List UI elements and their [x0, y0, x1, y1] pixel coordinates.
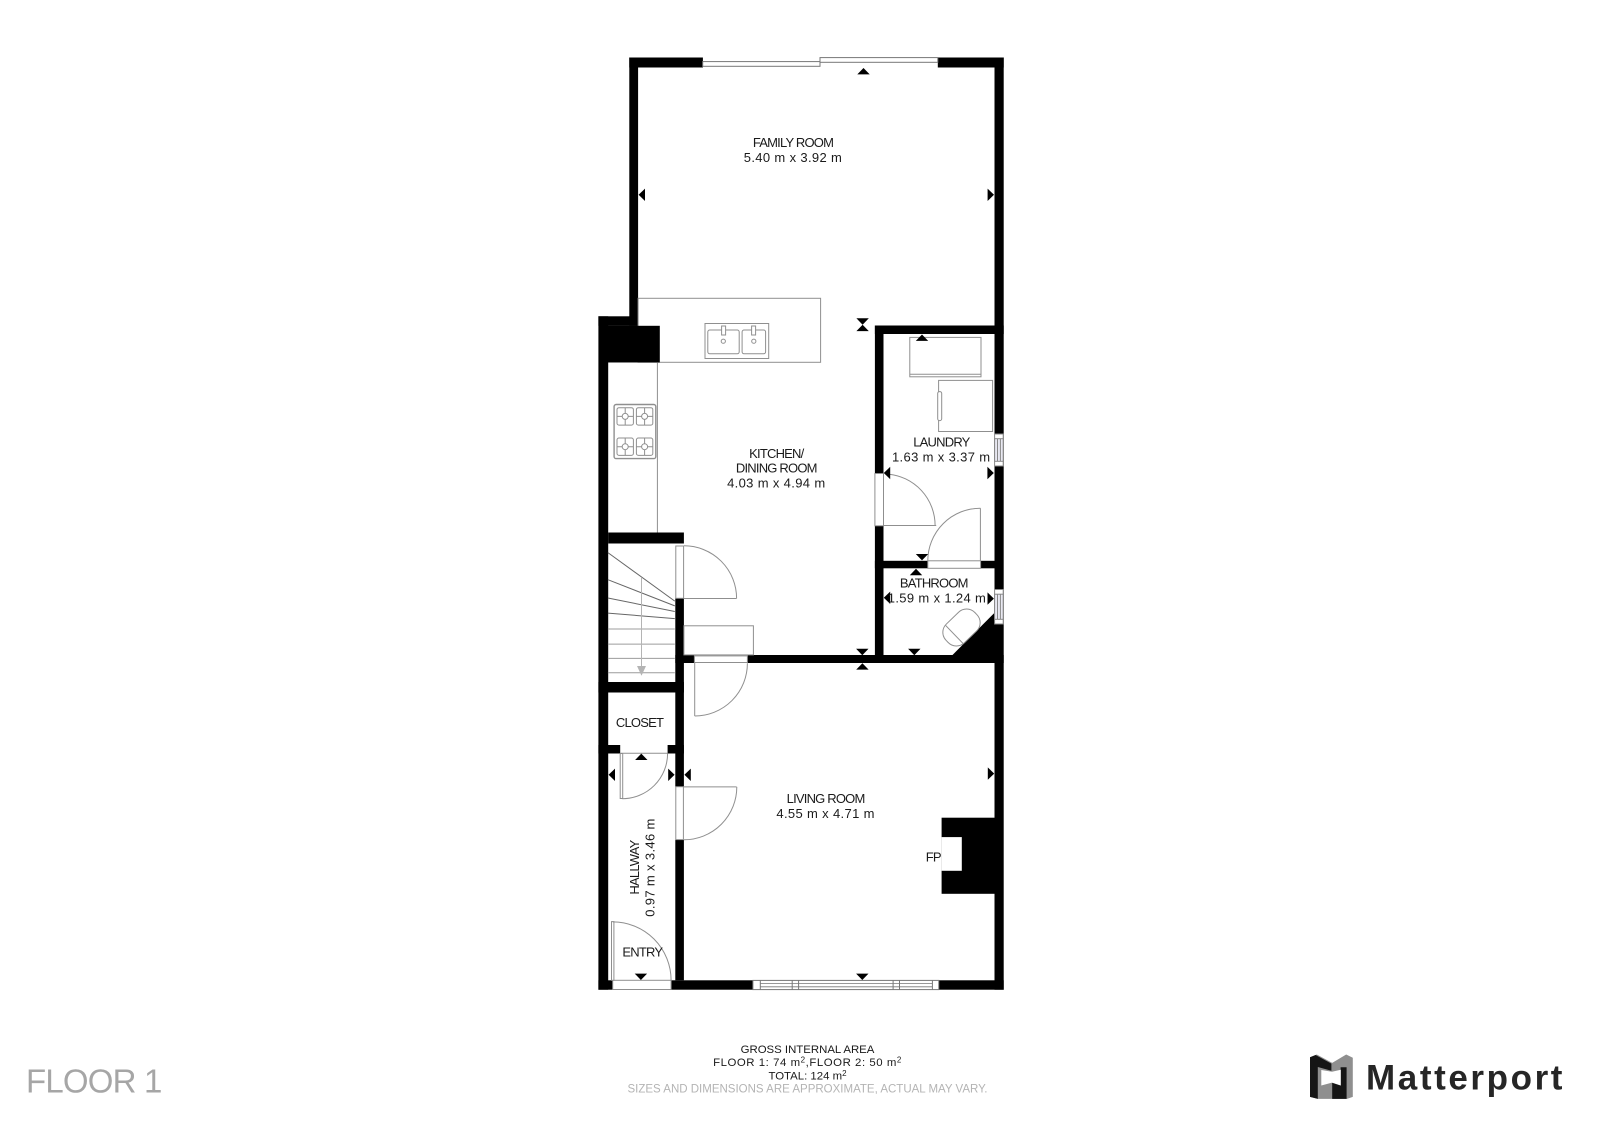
svg-text:KITCHEN/: KITCHEN/ — [749, 446, 804, 461]
svg-text:DINING ROOM: DINING ROOM — [736, 461, 817, 476]
svg-text:HALLWAY: HALLWAY — [627, 839, 642, 894]
svg-text:Matterport: Matterport — [1366, 1059, 1565, 1098]
svg-text:4.55 m x 4.71 m: 4.55 m x 4.71 m — [776, 806, 874, 821]
svg-text:LIVING ROOM: LIVING ROOM — [787, 791, 865, 806]
svg-text:0.97 m x 3.46 m: 0.97 m x 3.46 m — [643, 818, 658, 916]
svg-text:FLOOR 1: 74 m2,FLOOR 2: 50 m2: FLOOR 1: 74 m2,FLOOR 2: 50 m2 — [713, 1056, 902, 1070]
svg-text:FAMILY ROOM: FAMILY ROOM — [753, 135, 833, 150]
svg-text:LAUNDRY: LAUNDRY — [913, 435, 970, 450]
svg-text:CLOSET: CLOSET — [616, 715, 664, 730]
svg-text:BATHROOM: BATHROOM — [900, 576, 968, 591]
svg-text:4.03 m x 4.94 m: 4.03 m x 4.94 m — [727, 476, 825, 491]
svg-text:TOTAL: 124 m2: TOTAL: 124 m2 — [768, 1069, 847, 1083]
svg-text:1.63 m x 3.37 m: 1.63 m x 3.37 m — [892, 450, 990, 465]
svg-text:FP: FP — [926, 850, 941, 865]
svg-text:SIZES AND DIMENSIONS ARE APPRO: SIZES AND DIMENSIONS ARE APPROXIMATE, AC… — [627, 1084, 987, 1096]
svg-text:5.40 m x 3.92 m: 5.40 m x 3.92 m — [744, 150, 842, 165]
svg-text:GROSS INTERNAL AREA: GROSS INTERNAL AREA — [741, 1044, 875, 1056]
svg-text:1.59 m x 1.24 m: 1.59 m x 1.24 m — [888, 590, 986, 605]
svg-text:FLOOR 1: FLOOR 1 — [26, 1063, 162, 1100]
svg-text:ENTRY: ENTRY — [622, 944, 663, 959]
